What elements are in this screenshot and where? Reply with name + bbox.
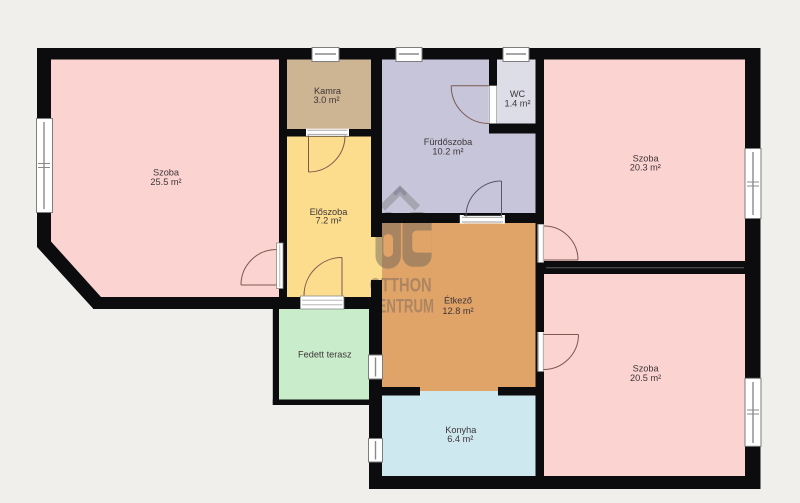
- svg-text:Fürdőszoba: Fürdőszoba: [424, 137, 473, 147]
- svg-text:Étkező: Étkező: [444, 295, 472, 305]
- svg-text:20.3 m²: 20.3 m²: [630, 163, 661, 173]
- svg-text:7.2 m²: 7.2 m²: [315, 216, 341, 226]
- svg-text:20.5 m²: 20.5 m²: [630, 373, 661, 383]
- svg-text:10.2 m²: 10.2 m²: [432, 146, 463, 156]
- svg-text:WC: WC: [510, 89, 526, 99]
- svg-text:6.4 m²: 6.4 m²: [447, 434, 473, 444]
- svg-text:Szoba: Szoba: [153, 167, 180, 177]
- svg-text:Szoba: Szoba: [633, 363, 660, 373]
- svg-text:12.8 m²: 12.8 m²: [442, 306, 473, 316]
- svg-text:25.5 m²: 25.5 m²: [150, 177, 181, 187]
- svg-text:3.0 m²: 3.0 m²: [313, 95, 339, 105]
- svg-text:1.4 m²: 1.4 m²: [504, 98, 530, 108]
- svg-text:Fedett terasz: Fedett terasz: [298, 349, 352, 359]
